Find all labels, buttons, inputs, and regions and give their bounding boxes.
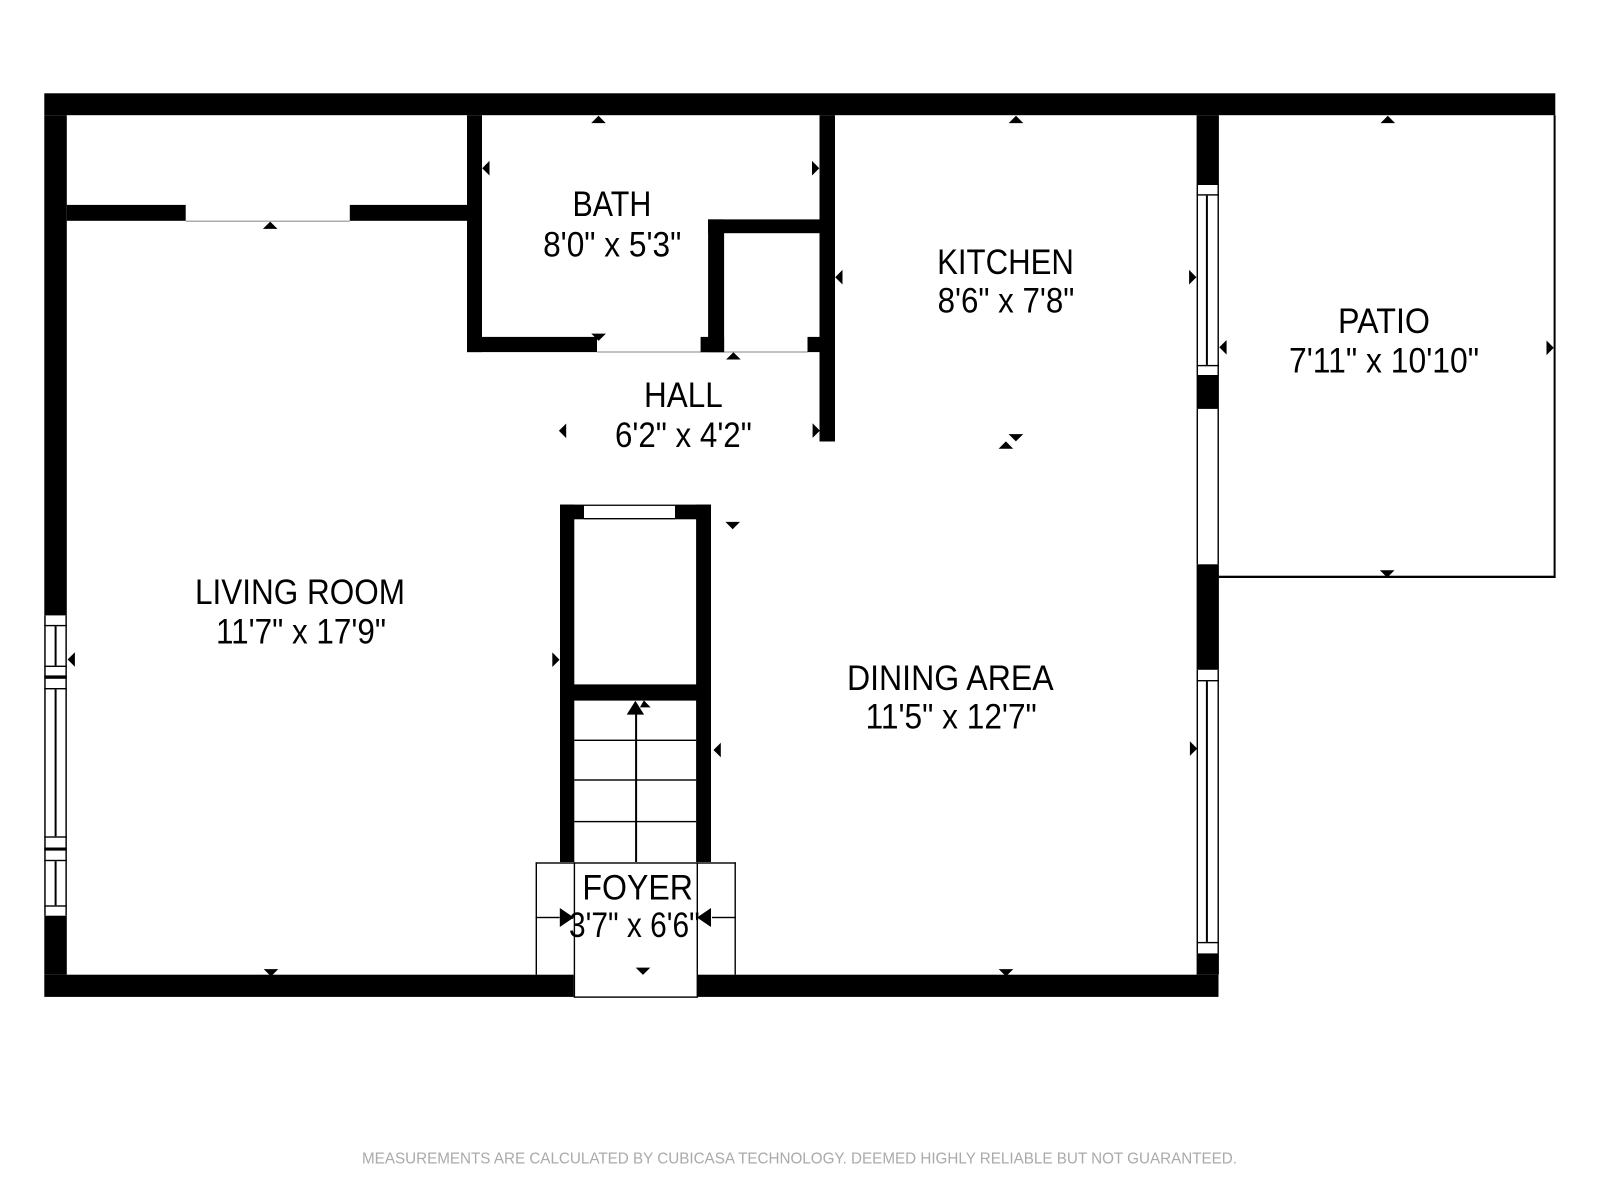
svg-text:BATH: BATH [573, 185, 652, 224]
svg-text:LIVING ROOM: LIVING ROOM [195, 573, 405, 612]
svg-text:11'7" x 17'9": 11'7" x 17'9" [216, 613, 386, 652]
svg-text:3'7" x 6'6": 3'7" x 6'6" [569, 906, 700, 945]
svg-text:7'11" x 10'10": 7'11" x 10'10" [1289, 342, 1479, 381]
svg-text:PATIO: PATIO [1338, 302, 1430, 341]
svg-text:8'0" x 5'3": 8'0" x 5'3" [543, 225, 681, 264]
svg-text:8'6" x 7'8": 8'6" x 7'8" [938, 282, 1075, 321]
svg-text:11'5" x 12'7": 11'5" x 12'7" [866, 698, 1037, 737]
svg-text:DINING AREA: DINING AREA [847, 659, 1054, 698]
svg-text:MEASUREMENTS ARE CALCULATED BY: MEASUREMENTS ARE CALCULATED BY CUBICASA … [362, 1151, 1237, 1168]
svg-text:HALL: HALL [644, 376, 723, 415]
svg-text:FOYER: FOYER [582, 869, 693, 908]
svg-text:6'2" x 4'2": 6'2" x 4'2" [615, 416, 752, 455]
svg-text:KITCHEN: KITCHEN [937, 243, 1074, 282]
